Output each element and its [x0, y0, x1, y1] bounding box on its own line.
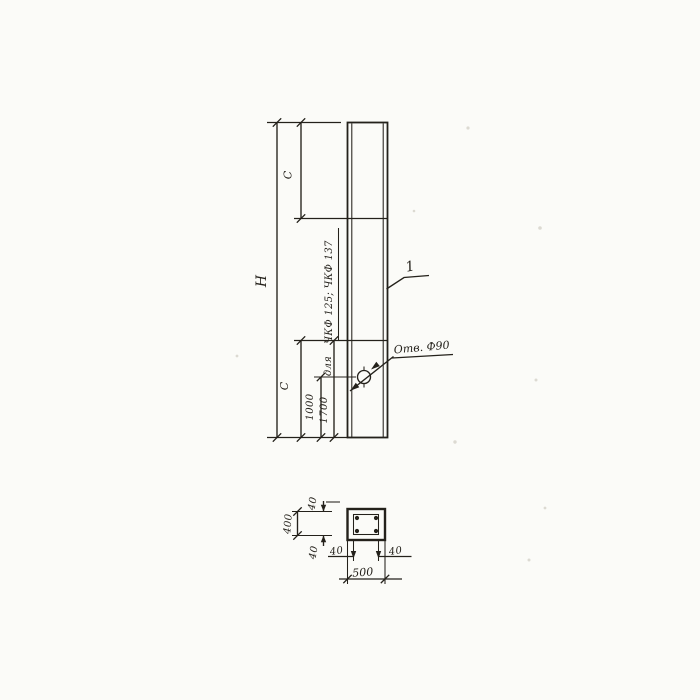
cross-section-view: 40 40 400 40 40 500 — [282, 496, 411, 584]
cover-top-arrowhead — [321, 505, 326, 512]
rebar-dot — [374, 529, 378, 533]
column-outline — [348, 123, 388, 438]
part-mark-callout: 1 — [387, 258, 430, 289]
part-mark-leader — [387, 276, 430, 290]
dim-label-c-upper: C — [282, 170, 295, 179]
rebar-dots — [355, 516, 378, 533]
note-marks-label: ЧКФ 125; ЧКФ 137 — [324, 240, 335, 344]
noise-speck — [236, 355, 239, 358]
application-note: ЧКФ 125; ЧКФ 137 для — [323, 228, 339, 376]
technical-drawing: Отв. Ф90 1 ЧКФ 125; ЧКФ 137 для H C C 10… — [0, 0, 700, 700]
dim-label-1700: 1700 — [319, 396, 330, 423]
part-mark-1-label: 1 — [404, 258, 416, 276]
cover-right-arrowhead — [376, 551, 381, 559]
noise-speck — [528, 559, 531, 562]
dim-label-1000: 1000 — [305, 393, 316, 420]
cover-bottom-label: 40 — [307, 545, 320, 561]
cover-top-label: 40 — [306, 496, 319, 512]
section-height-label: 400 — [282, 513, 295, 535]
cover-left-label: 40 — [328, 545, 344, 558]
rebar-dot — [355, 529, 359, 533]
noise-speck — [538, 226, 542, 230]
cover-bottom-arrowhead — [321, 536, 326, 543]
note-for-label: для — [323, 356, 334, 376]
noise-speck — [413, 210, 416, 213]
scanned-drawing-sheet: Отв. Ф90 1 ЧКФ 125; ЧКФ 137 для H C C 10… — [0, 0, 700, 700]
noise-speck — [453, 440, 456, 443]
noise-speck — [535, 379, 538, 382]
noise-speck — [466, 126, 469, 129]
hole-diameter-label: Отв. Ф90 — [393, 339, 450, 357]
dim-label-h: H — [254, 274, 270, 288]
cover-left-arrowhead — [351, 551, 356, 559]
dim-label-c-lower: C — [278, 381, 291, 390]
column-elevation-view: Отв. Ф90 1 ЧКФ 125; ЧКФ 137 для H C C 10… — [254, 118, 453, 441]
paper-noise — [236, 126, 547, 561]
section-width-label: 500 — [352, 565, 374, 579]
noise-speck — [544, 507, 547, 510]
rebar-dot — [374, 516, 378, 520]
rebar-dot — [355, 516, 359, 520]
cover-right-label: 40 — [387, 545, 403, 558]
